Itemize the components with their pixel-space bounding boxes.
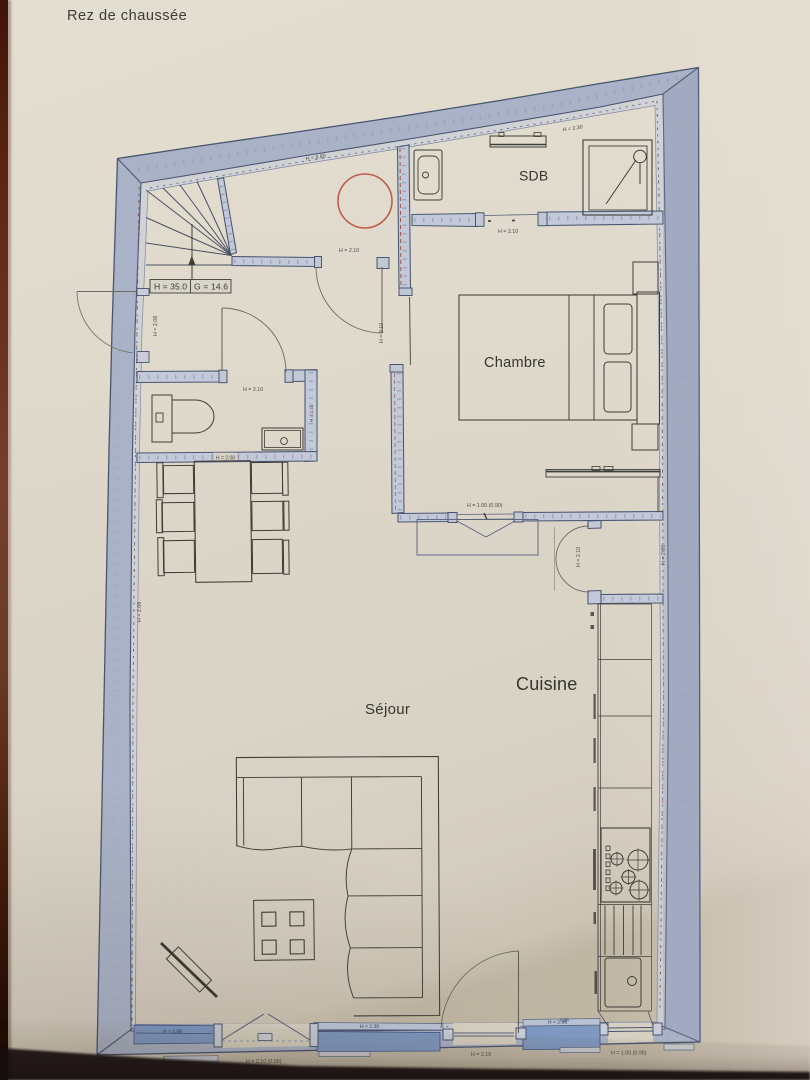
svg-text:Cuisine: Cuisine — [516, 674, 577, 694]
svg-text:H = 2.08: H = 2.08 — [216, 456, 235, 462]
svg-text:SDB: SDB — [519, 168, 548, 184]
svg-text:H = 2.10: H = 2.10 — [498, 229, 518, 235]
svg-text:H = 2.10: H = 2.10 — [379, 323, 385, 343]
svg-text:H = 2.08: H = 2.08 — [137, 602, 143, 622]
svg-text:H = 2.10: H = 2.10 — [339, 248, 359, 254]
svg-text:G = 14.6: G = 14.6 — [194, 282, 228, 292]
svg-text:H = 2.10: H = 2.10 — [576, 547, 582, 567]
svg-text:Chambre: Chambre — [484, 355, 546, 371]
svg-text:H = 2.08: H = 2.08 — [153, 316, 159, 336]
svg-text:H = 1.00 (0.90): H = 1.00 (0.90) — [467, 503, 503, 509]
svg-text:Rez de chaussée: Rez de chaussée — [67, 8, 187, 24]
svg-text:H = 2.10: H = 2.10 — [309, 404, 314, 422]
svg-text:H = 35.0: H = 35.0 — [154, 282, 187, 292]
svg-text:H = 2.10: H = 2.10 — [243, 387, 263, 393]
svg-text:Séjour: Séjour — [365, 701, 410, 718]
